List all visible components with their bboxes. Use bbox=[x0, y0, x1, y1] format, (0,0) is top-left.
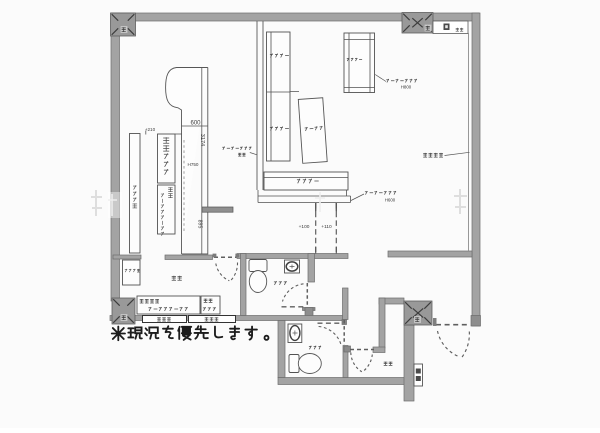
svg-text:895: 895 bbox=[197, 220, 203, 229]
svg-text:3174: 3174 bbox=[199, 134, 205, 146]
svg-text:H800: H800 bbox=[401, 85, 412, 90]
svg-text:+110: +110 bbox=[321, 224, 332, 230]
svg-text:H600: H600 bbox=[385, 198, 396, 203]
svg-text:+210: +210 bbox=[145, 127, 156, 132]
svg-text:+100: +100 bbox=[299, 224, 310, 230]
svg-text:600: 600 bbox=[190, 121, 201, 127]
svg-text:H750: H750 bbox=[188, 162, 199, 167]
